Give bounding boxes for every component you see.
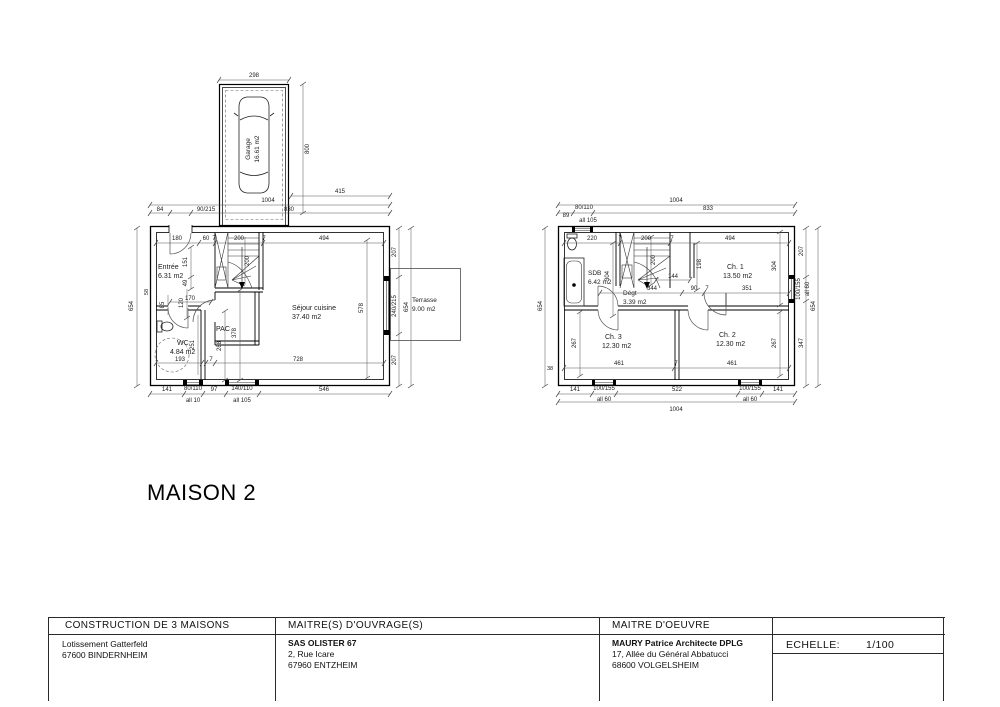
room-area: 9.00 m2: [412, 306, 436, 313]
toilet-bowl-symbol: [568, 238, 577, 250]
dim-label: 100/155: [593, 386, 615, 392]
dim-label: 141: [570, 387, 581, 393]
room-area: 13.50 m2: [723, 273, 752, 280]
dim-label: 494: [725, 236, 736, 242]
owner-name: SAS OLISTER 67: [288, 638, 357, 649]
project-header: CONSTRUCTION DE 3 MAISONS: [65, 620, 229, 631]
dim-label: 100/155: [796, 278, 802, 300]
project-line1: Lotissement Gatterfeld: [62, 639, 148, 650]
dim-label: 207: [392, 354, 398, 365]
dim-label: 654: [404, 301, 410, 312]
scale-box-border: [772, 653, 943, 654]
dim-label: 304: [605, 270, 611, 281]
garage-plan: Garage 16.61 m2: [220, 85, 289, 226]
dim-label: 288: [217, 340, 223, 351]
dim-label: 200: [651, 254, 657, 265]
dim-label: 461: [727, 361, 738, 367]
dim-label: all 105: [233, 398, 251, 404]
dim-label: 60: [203, 236, 210, 242]
dim-label: 80/110: [184, 386, 203, 392]
gf-door-arcs: [168, 300, 215, 328]
dim-label: 267: [572, 337, 578, 348]
dim-label: 494: [319, 236, 330, 242]
title-block-divider: [275, 617, 276, 701]
room-name: Garage: [245, 138, 252, 160]
dim-label: 304: [772, 260, 778, 271]
dim-label: 200: [641, 236, 652, 242]
title-block-top-border: [48, 617, 945, 618]
dim-label: 1004: [669, 407, 683, 413]
scale-value: 1/100: [866, 639, 894, 651]
dim-label: 578: [359, 302, 365, 313]
dim-label: 220: [587, 236, 598, 242]
dim-label: 141: [773, 387, 784, 393]
room-name: Ch. 2: [719, 332, 736, 339]
owner-header: MAITRE(S) D'OUVRAGE(S): [288, 620, 423, 631]
room-name: Séjour cuisine: [292, 305, 336, 312]
dim-label: 200: [245, 255, 251, 266]
terrasse-outline: [391, 269, 461, 341]
dim-label: 140/110: [231, 386, 253, 392]
gf-window-markers: [183, 276, 390, 386]
dim-label: 7: [670, 236, 674, 242]
dim-label: 89: [563, 213, 570, 219]
dim-label: 170: [185, 296, 196, 302]
title-block-divider: [772, 617, 773, 701]
dim-label: 728: [293, 357, 304, 363]
architect-address: MAURY Patrice Architecte DPLG 17, Allée …: [612, 638, 743, 671]
dim-label: 7: [212, 236, 216, 242]
dim-label: 351: [742, 286, 753, 292]
architect-line1: 17, Allée du Général Abbatucci: [612, 649, 743, 660]
dim-label: 84: [157, 207, 164, 213]
scale-label: ECHELLE:: [786, 639, 840, 651]
room-area: 6.31 m2: [158, 273, 183, 280]
title-block-header-border: [48, 634, 945, 635]
dim-label: 85: [160, 301, 166, 308]
room-name: PAC: [216, 326, 230, 333]
ff-dimension-lines: [545, 205, 818, 402]
ff-door-arcs: [598, 286, 726, 330]
dim-label: 100/155: [739, 386, 761, 392]
dim-label: 180: [172, 236, 183, 242]
dim-label: 7: [674, 361, 678, 367]
title-block-divider: [599, 617, 600, 701]
dim-label: 90/215: [197, 207, 216, 213]
architect-name: MAURY Patrice Architecte DPLG: [612, 638, 743, 649]
dim-label: all 10: [186, 398, 201, 404]
dim-label: 7: [262, 236, 266, 242]
project-line2: 67600 BINDERNHEIM: [62, 650, 148, 661]
dim-label: 97: [211, 387, 218, 393]
bathtub-symbol: [564, 258, 584, 306]
dim-label: 198: [697, 258, 703, 269]
room-name: Terrasse: [412, 297, 437, 304]
room-name: SDB: [588, 270, 601, 277]
dim-label: 207: [392, 246, 398, 257]
dim-label: 344: [647, 286, 658, 292]
room-area: 12.30 m2: [716, 341, 745, 348]
title-block-divider: [943, 617, 944, 701]
ff-window-glazing: [575, 229, 794, 385]
dim-label: 522: [672, 387, 683, 393]
room-area: 3.39 m2: [623, 299, 647, 306]
room-name: Entrée: [158, 264, 179, 271]
dim-label: 240/215: [392, 295, 398, 317]
dim-label: all 105: [579, 218, 597, 224]
dim-label: 38: [547, 366, 553, 372]
dim-label: 141: [162, 387, 173, 393]
architect-line2: 68600 VOLGELSHEIM: [612, 660, 743, 671]
dim-label: 654: [538, 300, 544, 311]
dim-label: 193: [175, 357, 186, 363]
entry-door-opening: [169, 224, 192, 234]
dim-label: all 60: [805, 281, 811, 296]
first-floor-plan: SDB 6.42 m2 Dégt 3.39 m2 Ch. 1 13.50 m2 …: [538, 198, 821, 413]
dim-label: 546: [319, 387, 330, 393]
dim-label: 1004: [261, 198, 275, 204]
room-name: Ch. 3: [605, 334, 622, 341]
bathtub-inner: [567, 261, 582, 303]
dim-label: 7: [209, 357, 213, 363]
project-address: Lotissement Gatterfeld 67600 BINDERNHEIM: [62, 639, 148, 661]
toilet-tank-symbol: [567, 234, 577, 238]
plan-title: MAISON 2: [147, 480, 256, 506]
dim-label: 144: [668, 274, 679, 280]
dim-label: 58: [144, 289, 150, 295]
dim-label: 207: [799, 245, 805, 256]
room-name: Dégt: [623, 290, 637, 297]
room-area: 37.40 m2: [292, 314, 321, 321]
dim-label: 378: [232, 327, 238, 338]
dim-label: 267: [772, 337, 778, 348]
ff-stairs-landing: [622, 265, 632, 278]
dim-label: 80/110: [575, 205, 594, 211]
dim-label: all 60: [743, 397, 758, 403]
dim-label: 833: [703, 206, 714, 212]
dim-label: 830: [284, 207, 295, 213]
dim-label: 251: [190, 339, 196, 350]
dim-label: 654: [129, 300, 135, 311]
dim-label: 200: [234, 236, 245, 242]
floor-plan-drawing: Garage 16.61 m2 Entrée 6.31 m2 WC 4.84: [0, 0, 1000, 560]
title-block-divider: [48, 617, 49, 701]
bathtub-drain: [572, 283, 576, 287]
owner-line1: 2, Rue Icare: [288, 649, 357, 660]
dim-label: 151: [183, 256, 189, 267]
dim-label: 49: [183, 279, 189, 286]
dim-label: 90: [691, 286, 698, 292]
dim-label: 415: [335, 189, 346, 195]
toilet-bowl-symbol: [161, 322, 173, 331]
dim-label: 347: [799, 337, 805, 348]
gf-wall-outer: [151, 227, 390, 386]
owner-line2: 67960 ENTZHEIM: [288, 660, 357, 671]
room-name: Ch. 1: [727, 264, 744, 271]
room-area: 12.30 m2: [602, 343, 631, 350]
dim-label: 654: [811, 300, 817, 311]
ground-floor-plan: Entrée 6.31 m2 WC 4.84 m2 PAC Séjour cui…: [129, 73, 461, 404]
dim-label: all 60: [597, 397, 612, 403]
owner-address: SAS OLISTER 67 2, Rue Icare 67960 ENTZHE…: [288, 638, 357, 671]
room-area: 16.61 m2: [254, 135, 261, 162]
dim-label: 298: [249, 73, 260, 79]
dim-label: 1004: [669, 198, 683, 204]
dim-label: 461: [614, 361, 625, 367]
dim-label: 7: [705, 286, 709, 292]
architect-header: MAITRE D'OEUVRE: [612, 620, 710, 631]
room-name: WC: [177, 340, 189, 347]
dim-label: 800: [305, 143, 311, 154]
